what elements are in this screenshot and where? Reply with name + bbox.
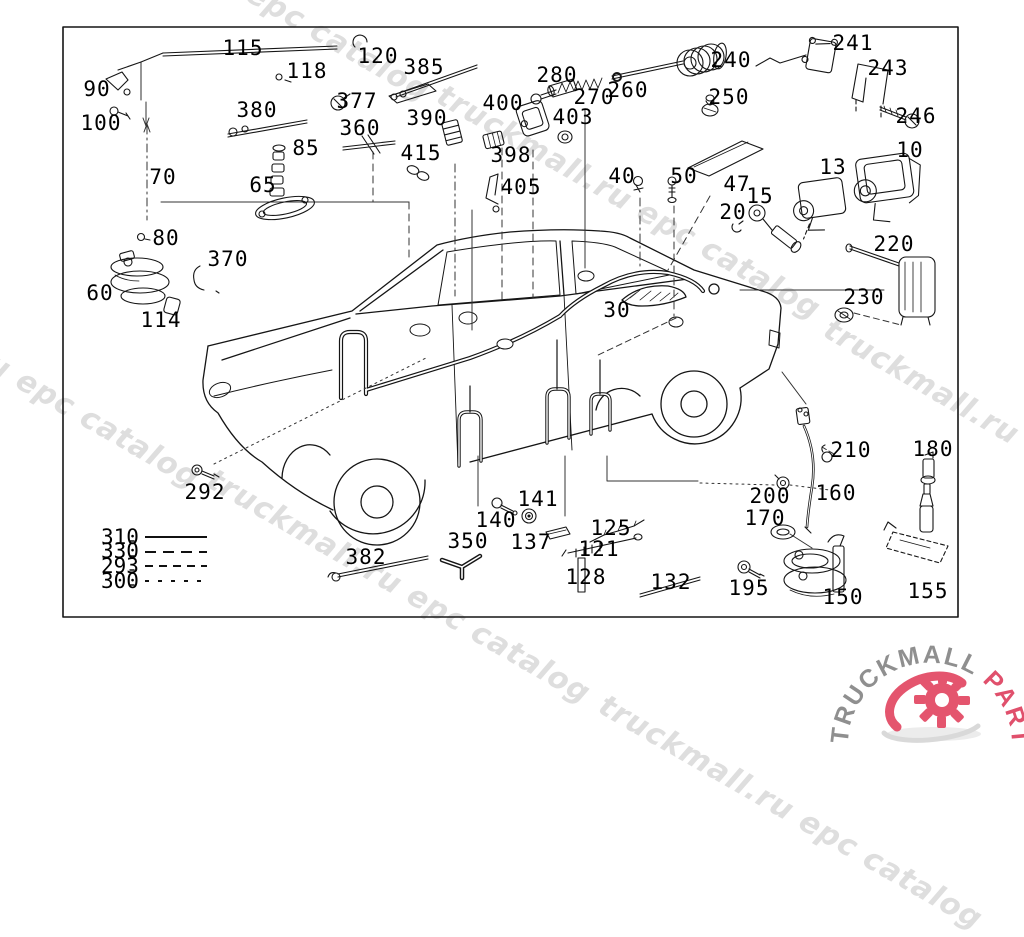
part-number-label: 30: [603, 298, 630, 322]
wiring-harness: [341, 271, 719, 466]
part-number-label: 350: [448, 529, 489, 553]
part-number-label: 115: [223, 36, 264, 60]
part-number-label: 382: [346, 545, 387, 569]
part-number-label: 243: [868, 56, 909, 80]
part-number-label: 220: [874, 232, 915, 256]
part-icon-403: [558, 131, 572, 143]
part-number-label: 170: [745, 506, 786, 530]
part-icon-15: [749, 205, 803, 254]
part-number-label: 150: [823, 585, 864, 609]
part-number-label: 40: [608, 164, 635, 188]
part-number-label: 390: [407, 106, 448, 130]
part-number-label: 415: [401, 141, 442, 165]
part-number-label: 246: [896, 104, 937, 128]
part-number-label: 210: [831, 438, 872, 462]
part-number-label: 400: [483, 91, 524, 115]
part-number-label: 80: [152, 226, 179, 250]
part-number-label: 15: [746, 184, 773, 208]
part-number-label: 140: [476, 508, 517, 532]
part-icon-350: [442, 556, 480, 578]
part-icon-47: [688, 141, 763, 176]
car-outline: [203, 230, 781, 545]
part-number-label: 240: [711, 48, 752, 72]
part-icon-60-horn: [111, 250, 169, 304]
part-number-label: 65: [249, 173, 276, 197]
leader-lines: [143, 102, 901, 548]
part-number-label: 180: [913, 437, 954, 461]
part-number-label: 114: [141, 308, 182, 332]
part-number-label: 360: [340, 116, 381, 140]
part-number-label: 132: [651, 570, 692, 594]
legend-line-sample: [145, 565, 207, 567]
part-icon-155-bracket: [884, 484, 948, 563]
part-icon-230: [835, 308, 853, 322]
legend-part-number: 300: [101, 571, 143, 592]
part-number-label: 85: [292, 136, 319, 160]
part-icon-380: [228, 120, 307, 137]
part-icons: [106, 34, 948, 597]
part-icon-415: [406, 164, 430, 182]
part-number-label: 405: [501, 175, 542, 199]
legend-line-sample: [145, 551, 207, 553]
part-number-label: 141: [518, 487, 559, 511]
part-number-label: 377: [337, 89, 378, 113]
part-icon-160: [796, 407, 813, 533]
part-number-label: 160: [816, 481, 857, 505]
part-number-label: 398: [491, 143, 532, 167]
part-icon-13: [790, 177, 849, 240]
part-number-label: 100: [81, 111, 122, 135]
part-number-label: 20: [719, 200, 746, 224]
part-number-label: 292: [185, 480, 226, 504]
part-number-label: 137: [511, 530, 552, 554]
legend-row: 300: [101, 574, 207, 589]
part-number-label: 370: [208, 247, 249, 271]
part-number-label: 280: [537, 63, 578, 87]
part-number-label: 60: [86, 281, 113, 305]
part-number-label: 128: [566, 565, 607, 589]
part-number-label: 260: [608, 78, 649, 102]
part-icon-80: [138, 234, 151, 241]
part-number-label: 120: [358, 44, 399, 68]
part-icon-141: [522, 509, 536, 523]
part-number-label: 13: [819, 155, 846, 179]
part-icon-292: [192, 465, 219, 479]
part-icon-10: [850, 151, 928, 226]
part-number-label: 195: [729, 576, 770, 600]
part-icon-241: [756, 34, 838, 73]
legend-line-sample: [145, 580, 207, 582]
part-number-label: 200: [750, 484, 791, 508]
parts-diagram-page: truckmall.ru epc catalogtruckmall.ru epc…: [0, 0, 1024, 750]
part-number-label: 10: [896, 138, 923, 162]
part-number-label: 118: [287, 59, 328, 83]
part-icon-405: [486, 174, 499, 212]
wire-type-legend: 310 330 293 300: [101, 530, 207, 588]
part-number-label: 241: [833, 31, 874, 55]
part-number-label: 230: [844, 285, 885, 309]
legend-line-sample: [145, 536, 207, 538]
part-number-label: 380: [237, 98, 278, 122]
part-number-label: 121: [579, 537, 620, 561]
part-number-label: 50: [670, 164, 697, 188]
part-number-label: 70: [149, 165, 176, 189]
part-number-label: 125: [591, 516, 632, 540]
part-number-label: 155: [908, 579, 949, 603]
part-number-label: 90: [83, 77, 110, 101]
part-number-label: 250: [709, 85, 750, 109]
part-number-label: 385: [404, 55, 445, 79]
